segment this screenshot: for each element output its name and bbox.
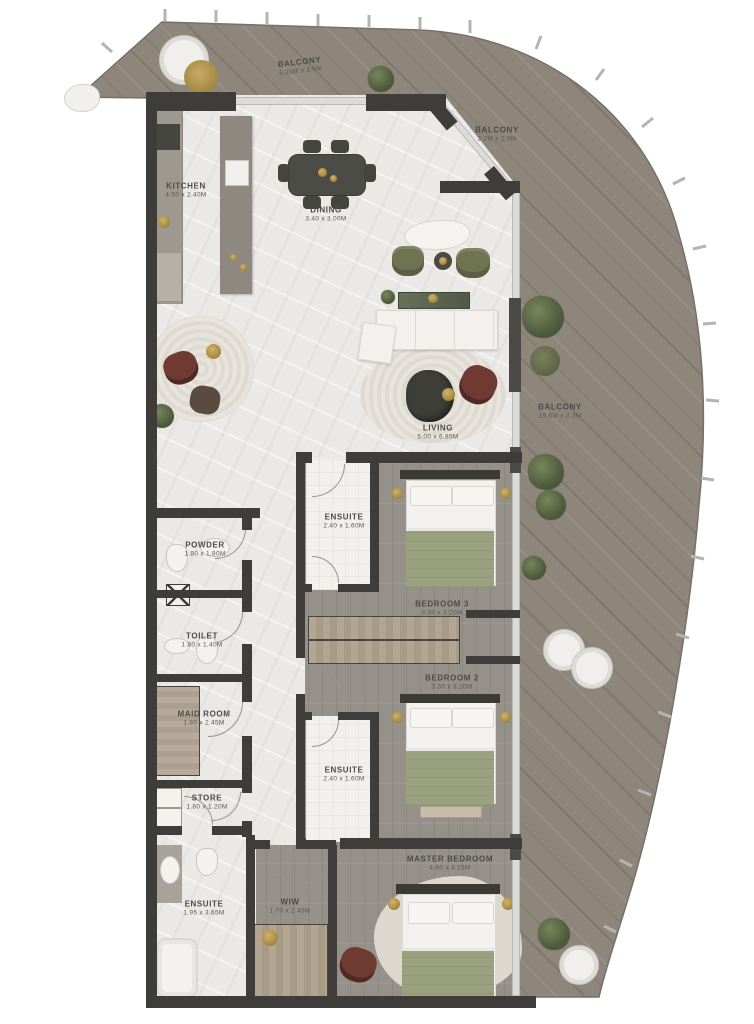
- dining-chair: [331, 140, 349, 153]
- powder-basin: [200, 538, 230, 557]
- plant-icon: [528, 454, 564, 490]
- gold-tray: [442, 388, 455, 401]
- bed-blanket: [406, 748, 494, 805]
- lounge-chair: [572, 648, 612, 688]
- gold-side-table: [206, 344, 221, 359]
- kitchen-island: [220, 116, 252, 294]
- plant-icon: [381, 290, 395, 304]
- gold-decor: [439, 257, 447, 265]
- store-appliance: [156, 808, 182, 828]
- armchair-olive: [392, 246, 424, 276]
- pillow: [452, 708, 494, 728]
- dining-chair: [303, 140, 321, 153]
- wall: [242, 508, 252, 530]
- dining-chair: [278, 164, 290, 182]
- wall: [296, 838, 306, 849]
- bedside-lamp: [500, 712, 511, 723]
- toilet-basin: [164, 638, 190, 654]
- pillow: [408, 902, 450, 924]
- wall: [440, 181, 520, 193]
- pillow: [410, 708, 452, 728]
- gold-decor: [240, 264, 247, 271]
- wall: [302, 584, 312, 592]
- island-sink: [225, 160, 249, 186]
- wall: [152, 826, 182, 835]
- ensuite-wc: [196, 848, 218, 876]
- sofa-chaise: [358, 322, 397, 364]
- pillow: [452, 902, 494, 924]
- wardrobe-bed2: [308, 640, 460, 664]
- plant-icon: [368, 66, 394, 92]
- lounge-chair: [560, 946, 598, 984]
- pillow: [452, 486, 494, 506]
- wall: [340, 838, 522, 849]
- bathtub: [156, 938, 198, 998]
- kitchen-faucet: [158, 216, 170, 228]
- bed-bench: [420, 806, 482, 818]
- bed-blanket: [406, 528, 494, 587]
- pillow: [410, 486, 452, 506]
- wardrobe-bed3: [308, 616, 460, 640]
- dining-chair: [303, 196, 321, 209]
- dining-chair: [331, 196, 349, 209]
- wall: [212, 826, 252, 835]
- wall: [338, 584, 379, 592]
- wall: [370, 712, 379, 845]
- kitchen-window: [230, 97, 370, 105]
- gold-decor: [428, 294, 438, 303]
- ensuite-sink: [160, 856, 180, 884]
- cooktop: [154, 124, 180, 150]
- wall: [242, 560, 252, 612]
- wall: [146, 92, 236, 111]
- wall: [466, 610, 520, 618]
- table-centerpiece: [330, 175, 337, 182]
- bedside-lamp: [392, 488, 403, 499]
- wall: [466, 656, 520, 664]
- bed-blanket: [402, 948, 494, 1003]
- wall: [152, 590, 252, 598]
- wall: [302, 712, 312, 720]
- wall: [246, 840, 270, 849]
- plant-icon: [538, 918, 570, 950]
- bedside-lamp: [500, 488, 511, 499]
- wall: [246, 835, 255, 998]
- gold-decor: [230, 254, 237, 261]
- bed-headboard: [396, 884, 500, 894]
- wall-bottom: [146, 996, 536, 1008]
- bed-headboard: [400, 694, 500, 703]
- dining-table: [288, 154, 366, 196]
- bedside-lamp: [392, 712, 403, 723]
- wall: [328, 845, 337, 998]
- dining-chair: [364, 164, 376, 182]
- wall: [152, 780, 252, 788]
- wall: [242, 644, 252, 702]
- wall: [296, 452, 305, 592]
- plant-icon: [522, 296, 564, 338]
- wall-left: [146, 94, 157, 1008]
- wall: [296, 592, 305, 658]
- maid-bed: [156, 686, 200, 776]
- floor-plan: BALCONY 6.26M x 1.5M BALCONY 2.2M x 2.0M…: [0, 0, 754, 1024]
- armchair-olive: [456, 248, 490, 278]
- plant-icon: [536, 490, 566, 520]
- olive-table: [530, 346, 560, 376]
- planter: [64, 84, 100, 112]
- powder-wc: [166, 544, 188, 572]
- store-appliance: [156, 788, 182, 808]
- bedside-lamp: [388, 898, 400, 910]
- toilet-wc: [196, 636, 218, 664]
- kitchen-cabinet: [154, 252, 182, 302]
- bed-headboard: [400, 470, 500, 479]
- round-mat: [184, 60, 218, 94]
- table-centerpiece: [318, 168, 327, 177]
- wall: [152, 674, 252, 682]
- plant-icon: [522, 556, 546, 580]
- wall: [370, 452, 379, 592]
- gold-pouf: [262, 930, 278, 946]
- sliding-door-panel: [509, 298, 521, 392]
